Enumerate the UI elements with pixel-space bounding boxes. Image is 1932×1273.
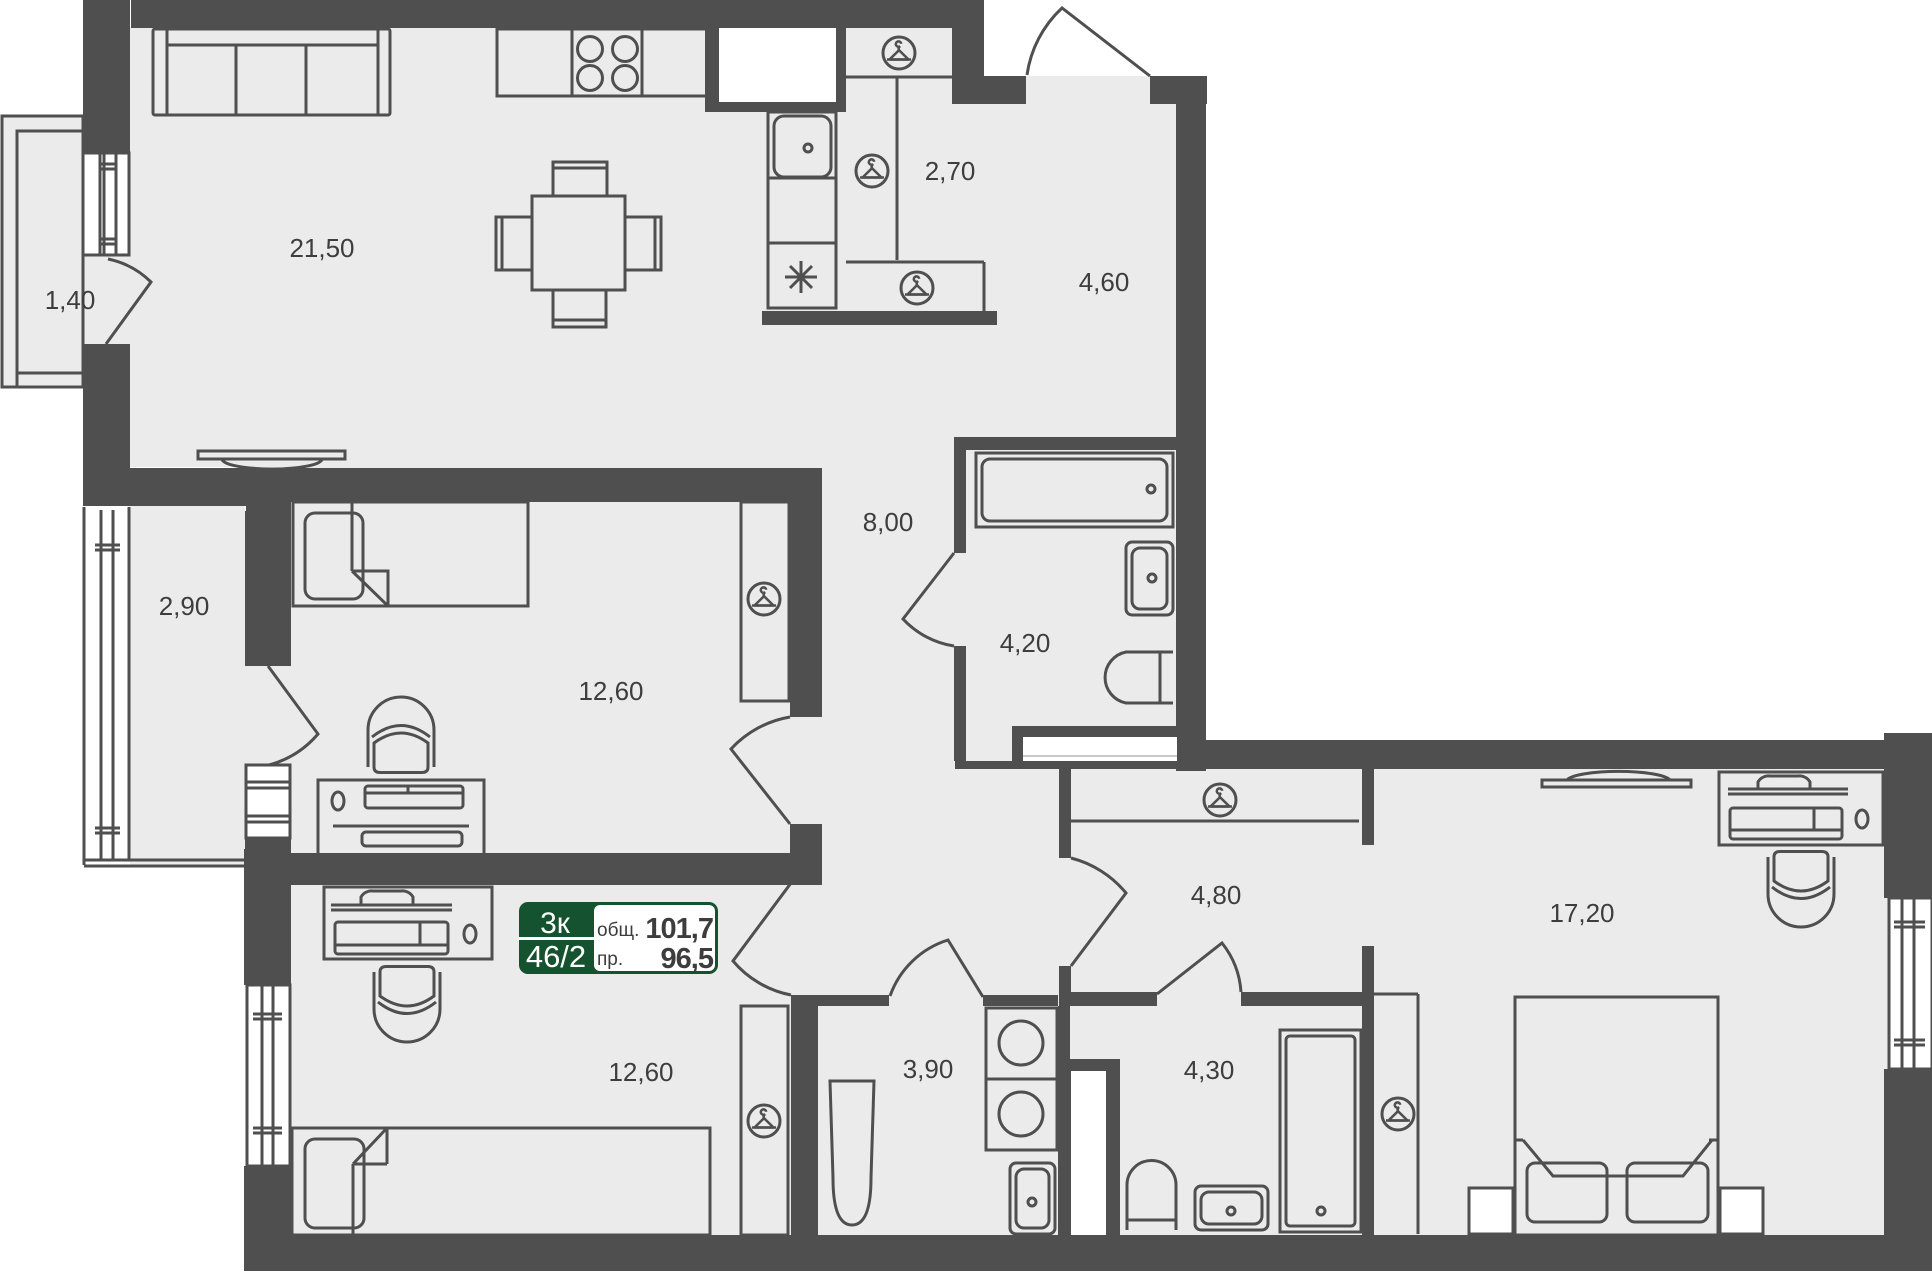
svg-text:8,00: 8,00 (863, 507, 914, 537)
svg-text:3,90: 3,90 (903, 1054, 954, 1084)
svg-text:96,5: 96,5 (661, 943, 714, 975)
svg-text:12,60: 12,60 (578, 676, 643, 706)
svg-text:пр.: пр. (597, 949, 623, 970)
svg-text:3к: 3к (540, 907, 571, 940)
svg-text:4,20: 4,20 (1000, 628, 1051, 658)
svg-text:4,60: 4,60 (1079, 267, 1130, 297)
svg-text:17,20: 17,20 (1549, 898, 1614, 928)
svg-text:1,40: 1,40 (45, 285, 96, 315)
svg-text:4,80: 4,80 (1191, 880, 1242, 910)
svg-text:12,60: 12,60 (608, 1057, 673, 1087)
svg-text:2,70: 2,70 (925, 156, 976, 186)
svg-text:21,50: 21,50 (289, 233, 354, 263)
svg-text:46/2: 46/2 (526, 939, 586, 974)
svg-text:2,90: 2,90 (159, 591, 210, 621)
svg-text:4,30: 4,30 (1184, 1055, 1235, 1085)
svg-text:101,7: 101,7 (645, 913, 713, 945)
svg-text:общ.: общ. (597, 920, 639, 941)
